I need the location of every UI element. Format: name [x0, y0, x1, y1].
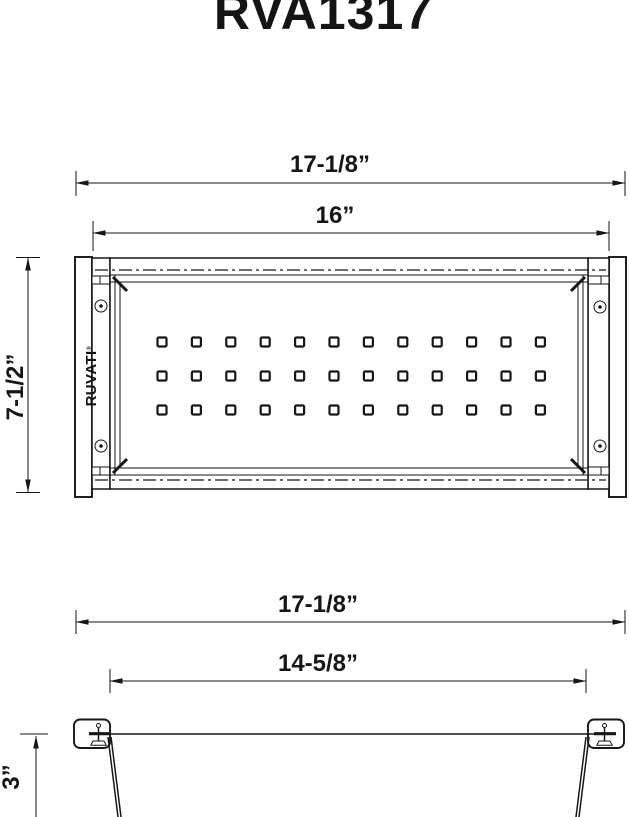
right-rail-strip — [588, 258, 609, 489]
technical-drawing: RUVATI® — [0, 0, 629, 817]
front-overall-width-label: 17-1/8” — [258, 591, 378, 619]
tray-body — [110, 258, 588, 489]
front-base-width-label: 14-5/8” — [258, 650, 378, 678]
top-inner-width-label: 16” — [295, 202, 375, 230]
front-view — [20, 610, 625, 817]
right-side-wall — [575, 737, 589, 817]
front-depth-label: 3” — [0, 755, 26, 799]
drawing-page: RVA1317 — [0, 0, 629, 817]
left-side-wall — [108, 737, 122, 817]
right-rail-bar — [609, 257, 626, 497]
top-front-to-back-label: 7-1/2” — [2, 342, 30, 432]
top-overall-width-label: 17-1/8” — [270, 151, 390, 179]
brand-logo: RUVATI® — [83, 345, 100, 406]
